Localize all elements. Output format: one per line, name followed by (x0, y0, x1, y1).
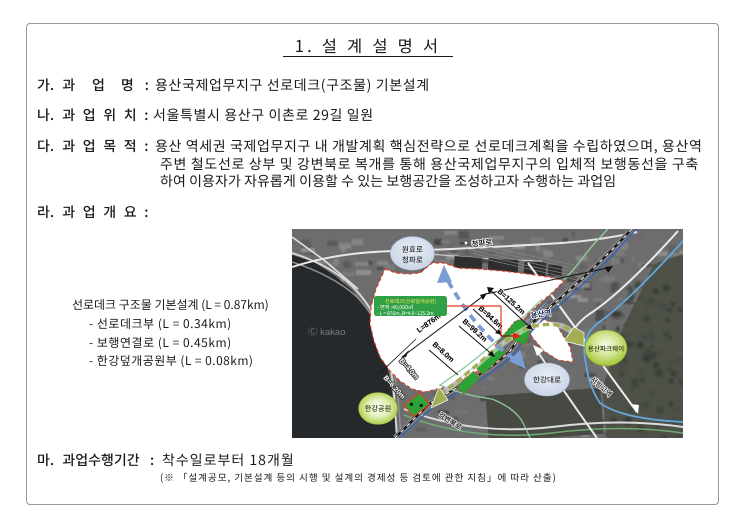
svg-text:원효로: 원효로 (402, 244, 423, 255)
svg-text:- L = 876m, B=4.0~125.2m: - L = 876m, B=4.0~125.2m (377, 310, 434, 317)
svg-text:청파로: 청파로 (402, 255, 423, 266)
svg-text:한강대로: 한강대로 (533, 375, 561, 386)
svg-text:Ⓒ kakao: Ⓒ kakao (308, 327, 346, 338)
svg-text:한강공원: 한강공원 (365, 404, 391, 414)
svg-text:용산파크웨이: 용산파크웨이 (588, 343, 624, 353)
